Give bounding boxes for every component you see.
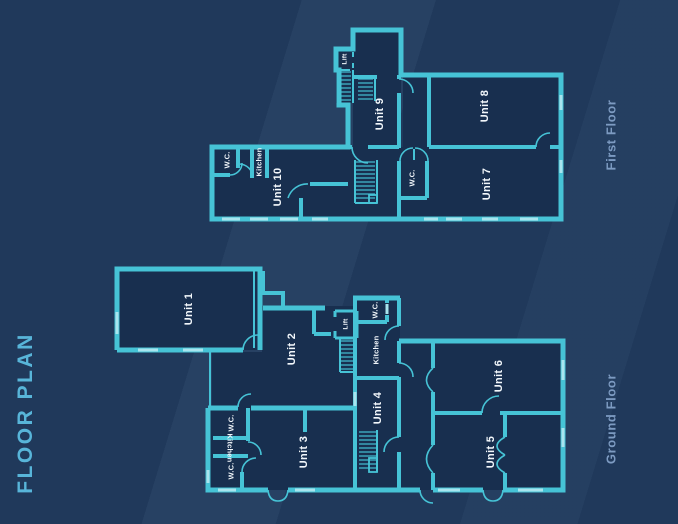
double-door bbox=[268, 490, 288, 501]
room-label-wc-mid-ground-floor: W.C. bbox=[227, 414, 236, 431]
room-label-wc-top-ground-floor: W.C. bbox=[371, 301, 380, 318]
room-label-lift-ground-floor: Lift bbox=[342, 318, 349, 330]
ground-floor-room-fill bbox=[212, 352, 264, 410]
room-label-lift-first-floor: Lift bbox=[341, 53, 348, 65]
floor-plan-drawing: Lift Unit 9 Unit 8 Unit 7 W.C. Unit 10 W… bbox=[0, 0, 678, 524]
room-label-unit-3: Unit 3 bbox=[298, 436, 310, 468]
room-label-wc-bottom-ground-floor: W.C. bbox=[227, 462, 236, 479]
porch-steps bbox=[263, 271, 283, 308]
room-label-unit-9: Unit 9 bbox=[374, 98, 386, 130]
room-label-wc-left-first-floor: W.C. bbox=[223, 151, 232, 168]
double-door bbox=[483, 490, 503, 501]
room-label-kitchen-first-floor: Kitchen bbox=[255, 147, 264, 176]
floor-plan-page: FLOOR PLAN First Floor Ground Floor bbox=[0, 0, 678, 524]
room-label-unit-10: Unit 10 bbox=[272, 168, 284, 207]
room-label-kitchen-ground-floor: Kitchen bbox=[372, 335, 381, 364]
room-label-unit-5: Unit 5 bbox=[485, 436, 497, 468]
ground-floor-plan: Unit 1 Unit 2 Lift W.C. Kitchen Unit 4 W… bbox=[117, 269, 563, 503]
door-arc bbox=[420, 490, 433, 503]
first-floor-room-fill bbox=[212, 147, 561, 219]
room-label-unit-6: Unit 6 bbox=[493, 360, 505, 392]
room-label-unit-4: Unit 4 bbox=[372, 391, 384, 424]
room-label-unit-8: Unit 8 bbox=[479, 90, 491, 122]
first-floor-plan: Lift Unit 9 Unit 8 Unit 7 W.C. Unit 10 W… bbox=[212, 30, 561, 219]
room-label-unit-7: Unit 7 bbox=[481, 168, 493, 200]
room-label-unit-2: Unit 2 bbox=[286, 333, 298, 365]
room-label-unit-1: Unit 1 bbox=[183, 293, 195, 325]
room-label-kitchen-left-ground-floor: Kitchen bbox=[225, 434, 234, 463]
room-label-wc-first-floor: W.C. bbox=[408, 169, 417, 186]
